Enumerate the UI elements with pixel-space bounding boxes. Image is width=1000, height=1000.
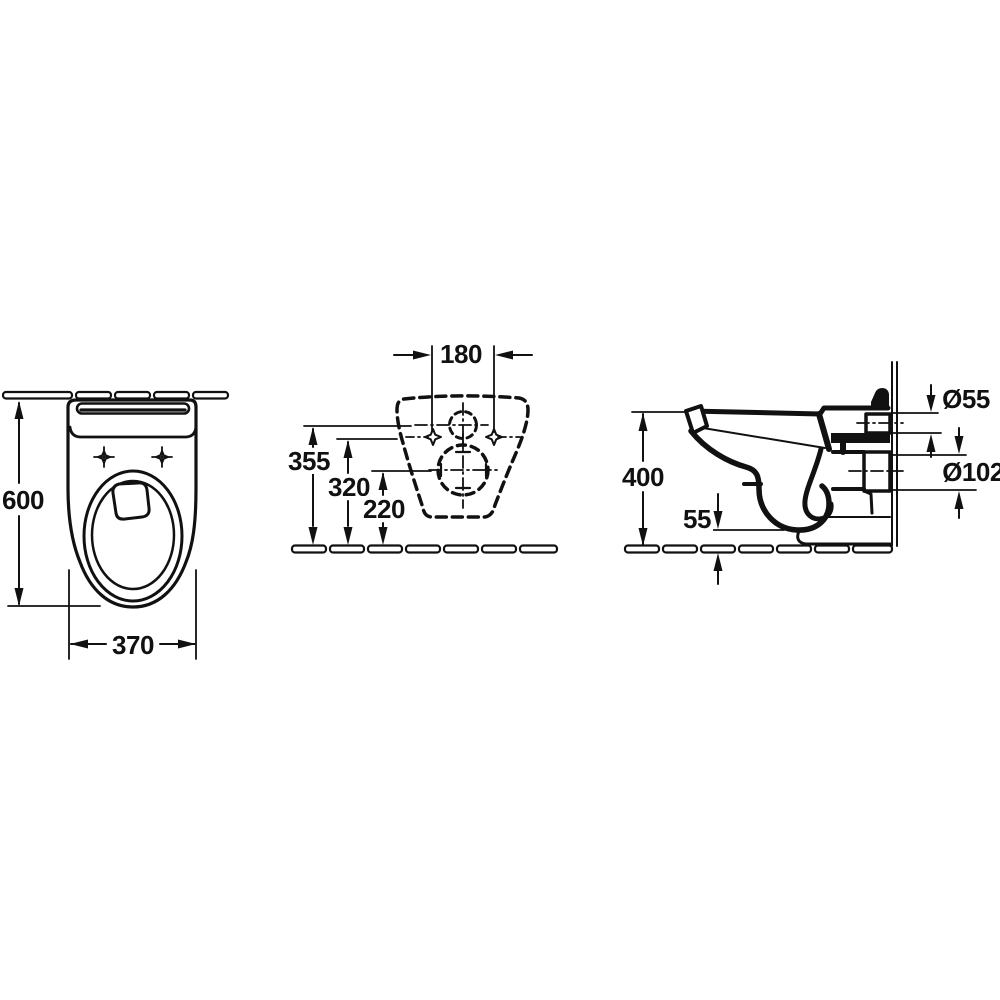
fixing-hole-left	[425, 429, 441, 445]
dim-label-top-depth: 600	[0, 487, 46, 513]
side-view	[625, 362, 976, 584]
wall-line	[892, 362, 897, 546]
dim-label-inlet-height: 355	[286, 448, 332, 474]
dimension-dia55	[891, 385, 941, 457]
dim-label-outlet-height: 220	[361, 496, 407, 522]
dim-label-top-width: 370	[110, 632, 156, 658]
technical-drawing-canvas: 600 370 180 355 320 220 400 55 Ø55 Ø102	[0, 0, 1000, 1000]
dim-label-rim-height: 400	[620, 464, 666, 490]
floor-hatch-rear	[292, 546, 557, 553]
drawing-linework	[0, 0, 1000, 1000]
dimension-55	[711, 494, 784, 584]
water-surface	[113, 483, 149, 519]
wall-hatch	[3, 392, 228, 399]
mounting-hook	[871, 388, 889, 408]
dim-label-hole-spacing: 180	[438, 341, 484, 367]
dim-label-outlet-diameter: Ø102	[940, 459, 1000, 485]
top-view	[3, 392, 228, 659]
dim-label-inlet-diameter: Ø55	[940, 386, 992, 412]
inlet-circle	[415, 403, 488, 449]
dim-label-floor-clearance: 55	[681, 506, 713, 532]
outlet-circle	[429, 434, 497, 508]
floor-hatch-side	[625, 546, 892, 553]
bowl-inner-line	[703, 428, 825, 448]
